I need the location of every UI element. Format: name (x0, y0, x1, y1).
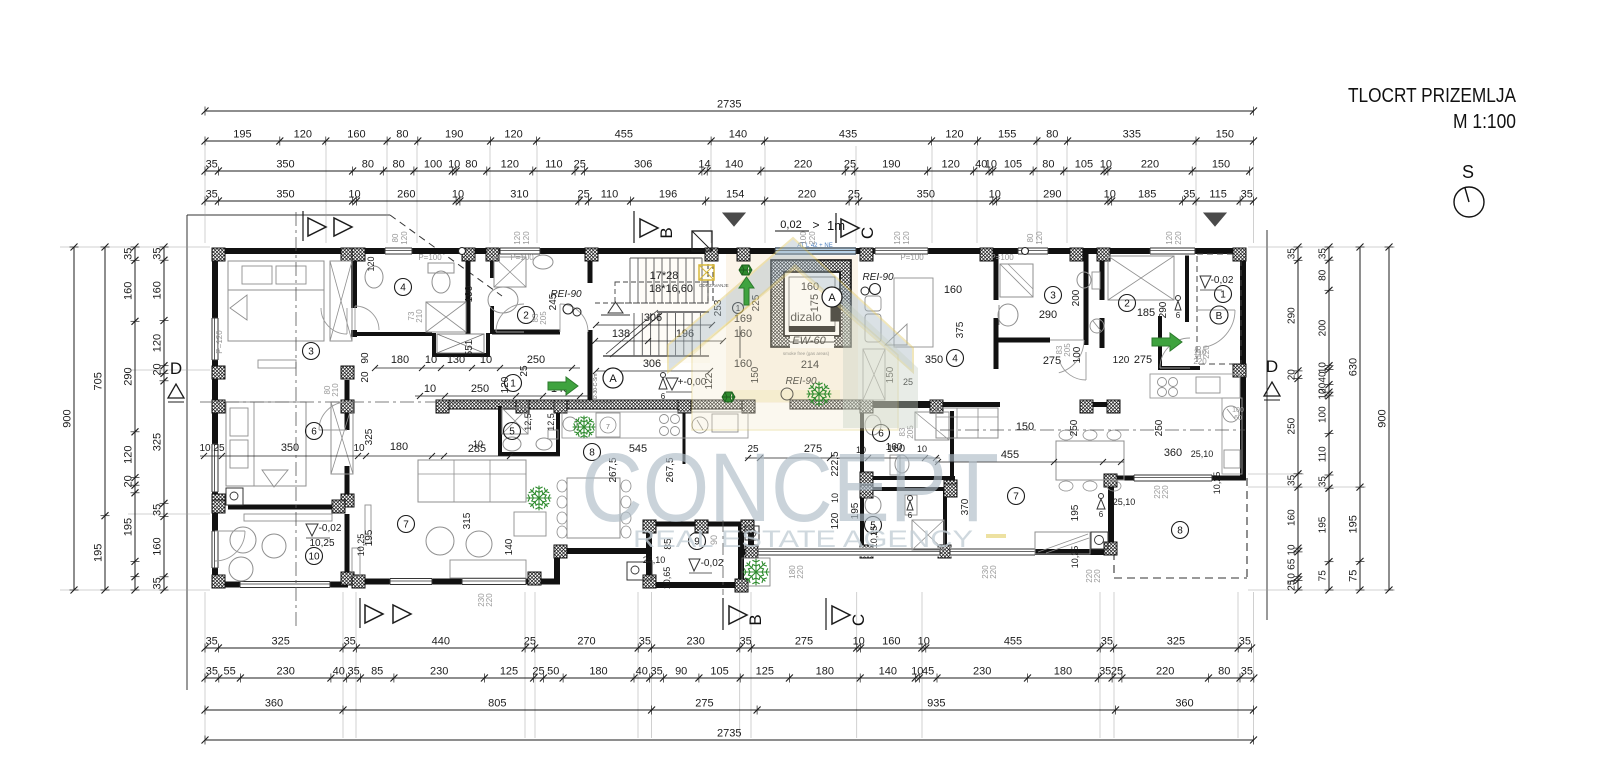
svg-text:35: 35 (1241, 666, 1253, 678)
svg-text:100: 100 (1318, 406, 1329, 423)
svg-text:TLOCRT PRIZEMLJA: TLOCRT PRIZEMLJA (1348, 85, 1517, 107)
svg-text:120: 120 (123, 446, 135, 464)
svg-text:115: 115 (1209, 189, 1227, 201)
svg-text:10,25: 10,25 (1212, 472, 1222, 495)
svg-text:185: 185 (1137, 307, 1155, 319)
svg-text:25,10: 25,10 (1191, 449, 1214, 459)
svg-text:200: 200 (1071, 289, 1082, 306)
svg-text:10: 10 (853, 636, 865, 648)
svg-text:140: 140 (725, 159, 743, 171)
svg-text:35: 35 (206, 636, 218, 648)
svg-text:180: 180 (390, 441, 408, 453)
svg-text:220: 220 (1156, 666, 1174, 678)
svg-text:100: 100 (799, 231, 808, 245)
svg-text:210: 210 (331, 383, 340, 397)
svg-text:10: 10 (425, 354, 437, 366)
svg-text:90: 90 (675, 666, 687, 678)
svg-text:35: 35 (1101, 636, 1113, 648)
svg-text:110: 110 (545, 159, 563, 171)
svg-text:250: 250 (1154, 419, 1165, 436)
svg-text:350: 350 (925, 354, 943, 366)
svg-text:195: 195 (93, 544, 105, 562)
svg-text:140: 140 (504, 538, 515, 555)
svg-text:35: 35 (206, 189, 218, 201)
svg-text:35: 35 (1241, 189, 1253, 201)
svg-text:155: 155 (998, 129, 1016, 141)
svg-text:6: 6 (1176, 311, 1181, 320)
svg-text:45: 45 (922, 666, 934, 678)
svg-text:10,65: 10,65 (662, 567, 672, 590)
svg-text:1: 1 (1220, 290, 1226, 301)
svg-text:630: 630 (1348, 358, 1360, 376)
svg-text:80: 80 (1026, 233, 1035, 242)
svg-text:705: 705 (93, 372, 105, 390)
svg-text:150: 150 (1016, 421, 1034, 433)
svg-text:900: 900 (62, 409, 74, 427)
svg-text:110: 110 (1318, 446, 1329, 462)
svg-text:20: 20 (360, 371, 371, 383)
svg-text:REAL ESTATE AGENCY: REAL ESTATE AGENCY (633, 526, 973, 553)
svg-text:138: 138 (612, 328, 630, 340)
svg-text:190: 190 (464, 285, 475, 302)
svg-text:7: 7 (1013, 492, 1019, 503)
svg-text:435: 435 (839, 129, 857, 141)
svg-text:275: 275 (695, 698, 713, 710)
svg-text:195: 195 (233, 129, 251, 141)
svg-text:325: 325 (364, 428, 375, 445)
svg-text:220: 220 (796, 565, 805, 579)
svg-text:195: 195 (1348, 515, 1360, 533)
svg-text:306: 306 (644, 312, 662, 324)
svg-text:0,02: 0,02 (780, 219, 801, 231)
svg-text:125: 125 (500, 666, 518, 678)
svg-text:140: 140 (879, 666, 897, 678)
svg-text:40: 40 (333, 666, 345, 678)
svg-text:80: 80 (1318, 269, 1329, 281)
svg-text:35: 35 (152, 504, 164, 516)
svg-text:350: 350 (276, 189, 294, 201)
svg-text:55: 55 (223, 666, 235, 678)
svg-text:M 1:100: M 1:100 (1453, 111, 1516, 133)
svg-text:P=100: P=100 (510, 253, 534, 262)
svg-text:35: 35 (1287, 248, 1298, 260)
svg-text:160: 160 (152, 537, 164, 555)
svg-text:220: 220 (1202, 345, 1211, 359)
svg-text:260: 260 (397, 189, 415, 201)
svg-text:5: 5 (509, 427, 515, 438)
svg-text:195: 195 (1318, 516, 1329, 533)
svg-text:290: 290 (1043, 189, 1061, 201)
svg-text:120: 120 (1113, 355, 1130, 366)
svg-text:275: 275 (1043, 355, 1061, 367)
svg-text:75: 75 (1318, 570, 1329, 582)
svg-text:120: 120 (294, 129, 312, 141)
svg-text:S: S (1462, 162, 1474, 182)
svg-text:25: 25 (532, 666, 544, 678)
svg-text:250: 250 (1069, 419, 1080, 436)
svg-text:10: 10 (985, 159, 997, 171)
svg-text:C: C (858, 227, 877, 239)
svg-text:80: 80 (391, 233, 400, 242)
svg-text:25,10: 25,10 (643, 555, 666, 565)
svg-text:REI-90: REI-90 (862, 272, 894, 283)
svg-text:A: A (609, 373, 617, 385)
svg-text:35: 35 (1183, 189, 1195, 201)
svg-text:290: 290 (1158, 301, 1169, 318)
svg-text:25: 25 (519, 365, 530, 377)
svg-text:10,25: 10,25 (309, 538, 334, 549)
svg-text:P=120: P=120 (215, 330, 224, 354)
svg-text:75: 75 (1348, 570, 1360, 582)
svg-text:1m: 1m (827, 218, 845, 233)
svg-text:25,10: 25,10 (1113, 497, 1136, 507)
svg-text:6: 6 (311, 427, 317, 438)
svg-text:190: 190 (882, 159, 900, 171)
svg-text:B: B (746, 614, 765, 625)
svg-text:360: 360 (1164, 447, 1182, 459)
svg-text:80: 80 (392, 159, 404, 171)
svg-text:375: 375 (955, 321, 966, 338)
svg-text:220: 220 (794, 159, 812, 171)
svg-text:120: 120 (902, 231, 911, 245)
svg-text:125: 125 (756, 666, 774, 678)
svg-text:160: 160 (882, 636, 900, 648)
svg-text:230: 230 (277, 666, 295, 678)
svg-text:10: 10 (1287, 544, 1298, 556)
svg-text:220: 220 (1174, 231, 1183, 245)
svg-text:25: 25 (1111, 666, 1123, 678)
svg-text:805: 805 (488, 698, 506, 710)
svg-text:10: 10 (452, 189, 464, 201)
svg-text:325: 325 (1167, 636, 1185, 648)
svg-text:350: 350 (281, 442, 299, 454)
svg-text:-0,02: -0,02 (319, 523, 342, 534)
svg-text:105: 105 (1075, 159, 1093, 171)
svg-text:100: 100 (1232, 407, 1244, 414)
svg-text:80: 80 (1218, 666, 1230, 678)
svg-text:35: 35 (152, 577, 164, 589)
svg-text:10: 10 (1100, 159, 1112, 171)
svg-text:230: 230 (973, 666, 991, 678)
svg-text:350: 350 (917, 189, 935, 201)
svg-text:2735: 2735 (717, 728, 741, 740)
svg-text:195: 195 (123, 518, 135, 536)
svg-text:180: 180 (391, 354, 409, 366)
svg-text:-0,02: -0,02 (701, 558, 724, 569)
svg-text:35: 35 (347, 666, 359, 678)
svg-text:10: 10 (348, 189, 360, 201)
svg-text:6: 6 (1099, 510, 1104, 519)
svg-text:4: 4 (400, 283, 406, 294)
svg-text:455: 455 (1004, 636, 1022, 648)
svg-text:2: 2 (1124, 299, 1130, 310)
svg-text:160: 160 (152, 281, 164, 299)
svg-text:80: 80 (362, 159, 374, 171)
svg-text:35: 35 (1099, 666, 1111, 678)
svg-text:120: 120 (366, 256, 376, 271)
svg-text:2: 2 (523, 311, 529, 322)
svg-text:275: 275 (1134, 354, 1152, 366)
svg-text:40: 40 (1318, 371, 1329, 383)
svg-text:35: 35 (152, 247, 164, 259)
svg-text:B: B (657, 227, 676, 238)
svg-text:10,25: 10,25 (1070, 546, 1080, 569)
svg-text:10: 10 (480, 354, 492, 366)
svg-text:10: 10 (1318, 388, 1329, 400)
svg-text:35: 35 (344, 636, 356, 648)
svg-text:120: 120 (504, 129, 522, 141)
svg-text:220: 220 (1141, 159, 1159, 171)
svg-text:335: 335 (1123, 129, 1141, 141)
svg-text:120: 120 (513, 231, 522, 245)
svg-text:360: 360 (265, 698, 283, 710)
svg-text:35: 35 (206, 159, 218, 171)
svg-text:12,5: 12,5 (523, 413, 533, 431)
svg-text:180: 180 (589, 666, 607, 678)
svg-text:205: 205 (1063, 343, 1072, 357)
svg-text:10: 10 (989, 189, 1001, 201)
svg-text:10,25: 10,25 (199, 443, 224, 454)
svg-text:120: 120 (1035, 231, 1044, 245)
svg-text:325: 325 (152, 433, 164, 451)
svg-text:220: 220 (485, 593, 494, 607)
svg-text:440: 440 (432, 636, 450, 648)
svg-text:120: 120 (522, 231, 531, 245)
svg-text:4: 4 (952, 354, 958, 365)
svg-text:35: 35 (1318, 248, 1329, 260)
svg-text:-0,02: -0,02 (1211, 275, 1234, 286)
svg-text:160: 160 (1287, 509, 1298, 526)
svg-text:250: 250 (527, 354, 545, 366)
svg-text:25: 25 (848, 189, 860, 201)
svg-text:40: 40 (636, 666, 648, 678)
svg-text:12,5: 12,5 (546, 413, 556, 431)
svg-text:10: 10 (918, 636, 930, 648)
svg-text:7: 7 (403, 520, 409, 531)
svg-text:290: 290 (123, 367, 135, 385)
svg-text:6: 6 (661, 392, 666, 401)
svg-text:90: 90 (360, 352, 371, 364)
svg-text:455: 455 (1001, 449, 1019, 461)
svg-text:110: 110 (601, 189, 619, 201)
svg-text:306: 306 (643, 358, 661, 370)
svg-text:P=100: P=100 (418, 253, 442, 262)
svg-text:65: 65 (1287, 558, 1298, 570)
svg-text:220: 220 (808, 231, 817, 245)
svg-text:35: 35 (650, 666, 662, 678)
svg-text:306: 306 (634, 159, 652, 171)
svg-text:150: 150 (1216, 129, 1234, 141)
svg-text:P=100: P=100 (990, 253, 1014, 262)
svg-text:120: 120 (500, 376, 511, 393)
svg-text:220: 220 (1161, 485, 1170, 499)
svg-text:245: 245 (548, 293, 559, 310)
svg-text:25: 25 (844, 159, 856, 171)
svg-text:120: 120 (501, 159, 519, 171)
svg-text:140: 140 (729, 129, 747, 141)
svg-text:60: 60 (1234, 415, 1242, 422)
svg-text:150: 150 (1212, 159, 1230, 171)
svg-text:185: 185 (1138, 189, 1156, 201)
svg-text:10: 10 (308, 552, 320, 563)
svg-text:120: 120 (942, 159, 960, 171)
svg-text:180: 180 (1054, 666, 1072, 678)
svg-text:D: D (170, 359, 182, 378)
svg-text:154: 154 (726, 189, 744, 201)
svg-text:ODRZAVANJE: ODRZAVANJE (699, 283, 729, 288)
svg-text:160: 160 (123, 282, 135, 300)
svg-text:18*16,60: 18*16,60 (649, 283, 693, 295)
svg-text:35: 35 (1239, 636, 1251, 648)
svg-text:325: 325 (272, 636, 290, 648)
svg-text:85: 85 (371, 666, 383, 678)
svg-text:35: 35 (739, 636, 751, 648)
svg-text:8: 8 (1177, 526, 1183, 537)
svg-text:10,25: 10,25 (356, 534, 366, 557)
svg-text:900: 900 (1377, 409, 1389, 427)
svg-text:315: 315 (462, 512, 473, 529)
svg-text:200: 200 (1318, 319, 1329, 336)
svg-text:35: 35 (206, 666, 218, 678)
svg-text:250: 250 (1287, 417, 1298, 434)
svg-text:270: 270 (577, 636, 595, 648)
svg-text:160: 160 (944, 284, 962, 296)
svg-text:2735: 2735 (717, 99, 741, 111)
svg-text:80: 80 (1046, 129, 1058, 141)
svg-text:180: 180 (816, 666, 834, 678)
svg-text:120: 120 (1165, 231, 1174, 245)
svg-text:205: 205 (539, 311, 548, 325)
svg-text:3: 3 (1050, 291, 1056, 302)
svg-text:190: 190 (445, 129, 463, 141)
svg-text:100: 100 (1072, 346, 1083, 363)
svg-text:120: 120 (400, 231, 409, 245)
svg-text:310: 310 (510, 189, 528, 201)
svg-text:130: 130 (447, 354, 465, 366)
svg-text:120: 120 (945, 129, 963, 141)
svg-text:10: 10 (1104, 189, 1116, 201)
svg-text:P=100: P=100 (900, 253, 924, 262)
svg-text:290: 290 (1039, 309, 1057, 321)
svg-text:>: > (812, 218, 819, 232)
svg-text:14: 14 (698, 159, 710, 171)
svg-text:1: 1 (510, 379, 516, 390)
svg-text:210: 210 (415, 309, 424, 323)
svg-text:7: 7 (606, 424, 610, 431)
svg-text:A: A (828, 292, 836, 304)
svg-text:551: 551 (464, 339, 475, 356)
svg-text:10: 10 (448, 159, 460, 171)
svg-text:25: 25 (1287, 579, 1298, 591)
svg-text:3: 3 (308, 347, 314, 358)
svg-text:20: 20 (123, 475, 135, 487)
svg-text:360: 360 (1175, 698, 1193, 710)
svg-text:El2-30-C-Sm: El2-30-C-Sm (593, 374, 599, 403)
svg-text:10: 10 (473, 439, 483, 449)
svg-text:50: 50 (547, 666, 559, 678)
svg-text:35: 35 (639, 636, 651, 648)
svg-text:195: 195 (1070, 504, 1081, 521)
svg-text:10: 10 (1318, 362, 1329, 374)
svg-text:105: 105 (1004, 159, 1022, 171)
svg-text:455: 455 (615, 129, 633, 141)
svg-text:196: 196 (659, 189, 677, 201)
svg-text:25: 25 (577, 189, 589, 201)
svg-text:25: 25 (574, 159, 586, 171)
svg-text:80: 80 (465, 159, 477, 171)
svg-text:35: 35 (1318, 476, 1329, 488)
svg-text:20: 20 (152, 363, 164, 375)
svg-text:160: 160 (347, 129, 365, 141)
svg-text:350: 350 (276, 159, 294, 171)
svg-text:220: 220 (989, 565, 998, 579)
svg-text:220: 220 (1093, 569, 1102, 583)
svg-text:80: 80 (396, 129, 408, 141)
svg-text:100: 100 (424, 159, 442, 171)
svg-text:120: 120 (152, 334, 164, 352)
svg-text:250: 250 (471, 383, 489, 395)
svg-text:D: D (1266, 357, 1278, 376)
svg-text:935: 935 (927, 698, 945, 710)
svg-text:105: 105 (710, 666, 728, 678)
svg-text:10: 10 (424, 383, 436, 395)
svg-text:25: 25 (524, 636, 536, 648)
svg-text:230: 230 (430, 666, 448, 678)
svg-text:275: 275 (795, 636, 813, 648)
svg-text:C: C (849, 614, 868, 626)
svg-text:230: 230 (687, 636, 705, 648)
svg-text:290: 290 (1287, 307, 1298, 324)
svg-text:120: 120 (893, 231, 902, 245)
svg-text:20: 20 (1287, 369, 1298, 381)
svg-text:80: 80 (1042, 159, 1054, 171)
svg-text:35: 35 (123, 248, 135, 260)
svg-text:35: 35 (1287, 474, 1298, 486)
svg-text:220: 220 (798, 189, 816, 201)
svg-text:B: B (1216, 311, 1223, 322)
svg-text:17*28: 17*28 (650, 270, 679, 282)
